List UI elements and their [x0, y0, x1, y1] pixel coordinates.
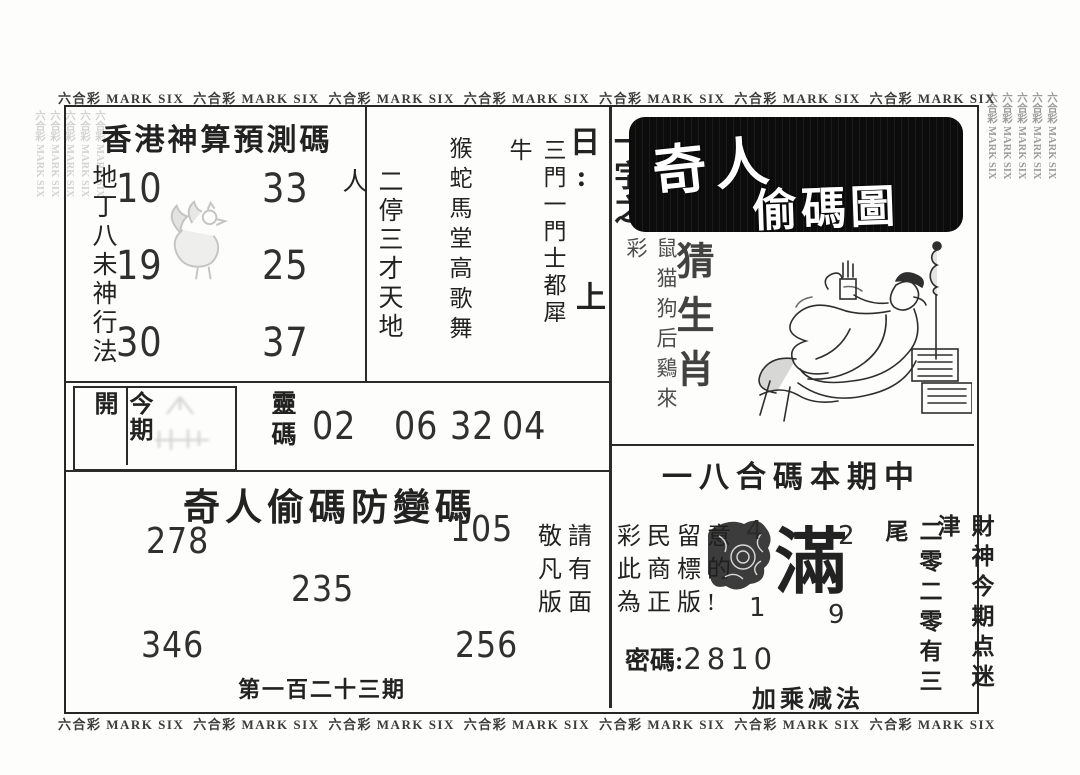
prediction-title: 香港神算預測碼	[72, 115, 362, 159]
seal-number-bottom-right: 9	[828, 600, 845, 630]
border-text-item: 六合彩 MARK SIX	[464, 714, 590, 733]
border-text-item: 六合彩 MARK SIX	[1014, 92, 1029, 708]
border-text-item: 六合彩 MARK SIX	[58, 714, 184, 733]
border-text-item: 六合彩 MARK SIX	[999, 92, 1014, 708]
spirit-code-number: 02	[312, 404, 356, 448]
notice-text: 版面	[538, 587, 598, 620]
border-text-item: 六合彩 MARK SIX	[47, 110, 62, 706]
border-text-item: 六合彩 MARK SIX	[870, 714, 996, 733]
border-text-item: 六合彩 MARK SIX	[1044, 92, 1059, 708]
password-label: 密碼:	[625, 648, 683, 675]
notice-text: 敬請	[538, 521, 598, 554]
seal-number-bottom-left: 1	[749, 593, 766, 623]
prediction-number: 33	[262, 166, 309, 212]
border-text-item: 六合彩 MARK SIX	[599, 714, 725, 733]
anti-change-number: 256	[455, 625, 518, 666]
anti-change-number: 105	[450, 509, 513, 550]
anti-change-number: 346	[141, 625, 204, 666]
spirit-code-label: 靈碼	[263, 390, 299, 466]
method-left-column: 地丁八未神行法	[84, 164, 120, 370]
method-right-column: 二停三才天地人	[334, 168, 406, 368]
lottery-tip-sheet: 六合彩 MARK SIX六合彩 MARK SIX六合彩 MARK SIX六合彩 …	[0, 0, 1080, 775]
password-value: 2810	[683, 642, 777, 676]
prediction-number: 37	[262, 320, 309, 366]
faded-print	[131, 391, 229, 462]
border-text-item: 六合彩 MARK SIX	[734, 714, 860, 733]
seal-number-top-left: 4	[746, 516, 763, 546]
border-text-item: 六合彩 MARK SIX	[1029, 92, 1044, 708]
border-text-item: 六合彩 MARK SIX	[32, 110, 47, 706]
password-line: 密碼:2810	[625, 641, 777, 677]
border-text-item: 六合彩 MARK SIX	[329, 714, 455, 733]
issue-number: 第一百二十三期	[238, 672, 406, 704]
spirit-code-number: 32	[450, 404, 494, 448]
prediction-number: 25	[262, 243, 309, 289]
anti-change-number: 278	[146, 521, 209, 562]
notice-text: 凡有	[538, 554, 598, 587]
seal-character: 滿	[775, 527, 847, 599]
verse-column-3: 猴蛇馬堂高歌舞	[441, 136, 475, 352]
prediction-number: 30	[116, 320, 163, 366]
spirit-code-number: 04	[502, 404, 546, 448]
reclining-scholar-illustration	[700, 233, 972, 443]
border-text-item: 六合彩 MARK SIX	[193, 714, 319, 733]
verse-answer: 上	[565, 281, 609, 315]
bottom-border-text: 六合彩 MARK SIX六合彩 MARK SIX六合彩 MARK SIX六合彩 …	[58, 714, 996, 733]
notice-left-rows: 敬請 凡有 版面	[538, 521, 598, 620]
rooster-icon	[153, 196, 241, 288]
divider-top-strip	[66, 381, 610, 383]
spirit-code-number: 06	[394, 404, 438, 448]
calc-method: 加乘减法	[752, 679, 864, 714]
trademark-stamp-icon	[708, 518, 778, 596]
master-title-bottom: 偷碼圖	[751, 169, 900, 239]
god-of-wealth-hint-column: 財神今期点迷津	[929, 514, 997, 714]
hit-announcement: 一八合碼本期中	[662, 452, 921, 496]
anti-change-number: 235	[291, 569, 354, 610]
